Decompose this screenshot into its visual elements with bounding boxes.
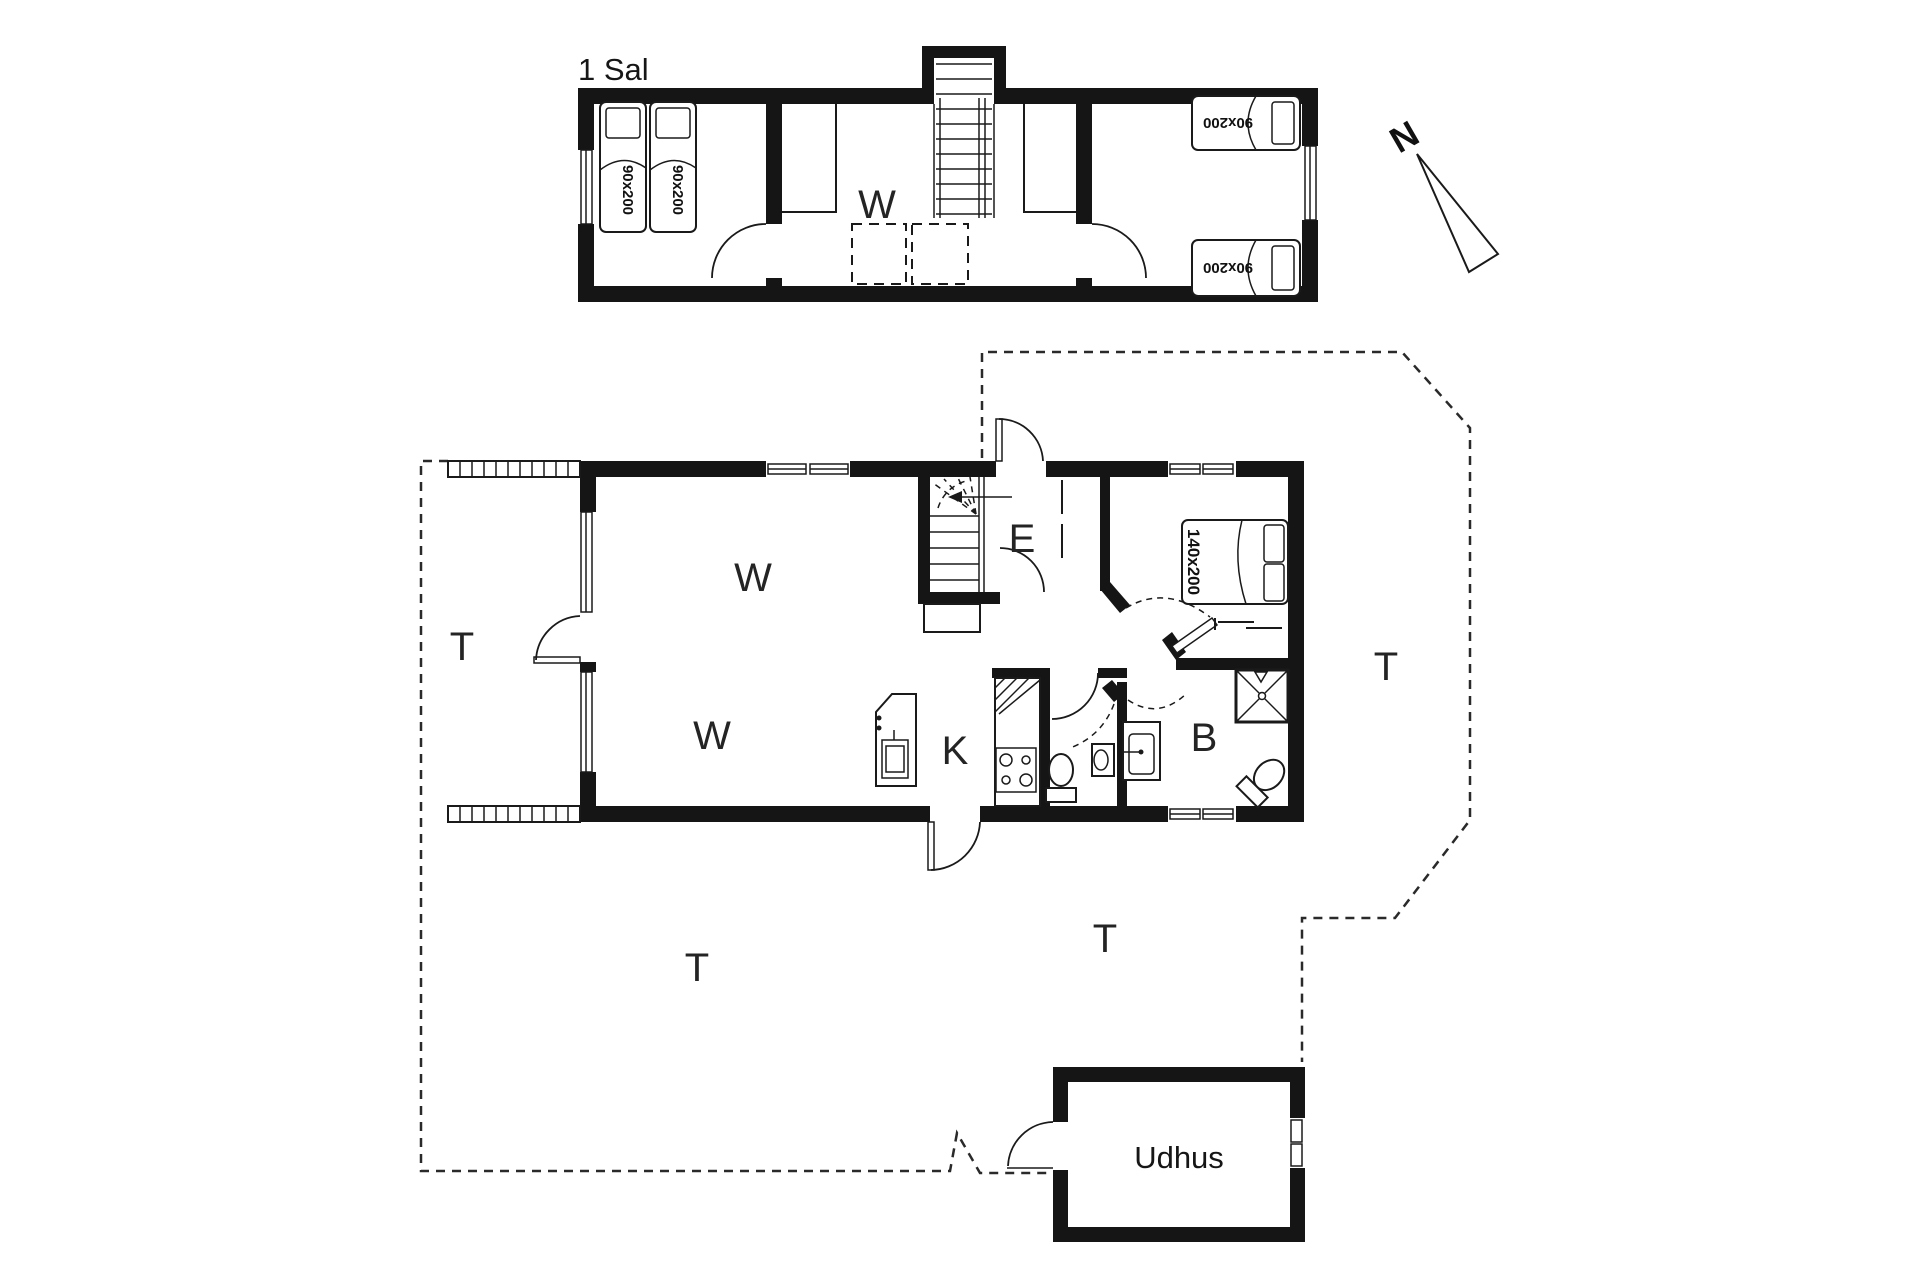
bed-size-label: 90x200: [1203, 114, 1253, 131]
outbuilding: Udhus: [1007, 1067, 1307, 1242]
bed-single-2: 90x200: [650, 102, 696, 232]
hall-wardrobes-dashed: [852, 224, 968, 284]
bed-single-3: 90x200: [1192, 96, 1300, 150]
bath-toilet: [1237, 752, 1292, 807]
first-floor-title: 1 Sal: [578, 52, 649, 87]
terrace-door-left: [534, 616, 580, 663]
bed-size-label: 140x200: [1184, 529, 1203, 595]
first-floor-stair-bumpout: [922, 46, 1006, 104]
bed-single-4: 90x200: [1192, 240, 1300, 296]
compass: N: [1383, 112, 1498, 272]
bed-double: 140x200: [1182, 520, 1288, 604]
ground-floor-staircase: [918, 477, 1012, 632]
first-floor-partitions: [712, 104, 1146, 286]
bath-label: B: [1191, 716, 1218, 760]
kitchen-sink-cabinet: [876, 694, 916, 786]
entry-label: E: [1009, 517, 1036, 561]
bed-size-label: 90x200: [669, 165, 686, 215]
boundary-right: [982, 352, 1470, 1062]
bed-size-label: 90x200: [1203, 259, 1253, 276]
stair-treads: [930, 516, 979, 580]
terrace-label-bottom-right: T: [1093, 917, 1117, 961]
wc-sink: [1092, 744, 1114, 776]
cooktop: [996, 748, 1036, 792]
bath-sink: [1123, 722, 1160, 780]
outbuilding-title: Udhus: [1134, 1140, 1224, 1175]
bed-size-label: 90x200: [619, 165, 636, 215]
door-arc-right-bedroom: [1092, 224, 1146, 278]
floor-plan-drawing: 1 Sal: [0, 0, 1920, 1280]
stair-treads: [936, 64, 992, 214]
living-room-label: W: [734, 556, 772, 600]
outbuilding-door: [1007, 1122, 1053, 1168]
door-arc-left-bedroom: [712, 224, 766, 278]
outbuilding-window: [1288, 1118, 1307, 1168]
terrace-door-bottom: [928, 822, 980, 870]
first-floor-hall-label: W: [858, 183, 896, 227]
floor-plan-page: 1 Sal: [0, 0, 1920, 1280]
ground-floor-plan: 140x200: [448, 419, 1398, 990]
closet-nook-right: [1024, 104, 1076, 212]
ground-floor-bedroom: 140x200: [1176, 520, 1288, 670]
understair-cabinet: [924, 604, 980, 632]
wc-toilet: [1046, 754, 1076, 802]
living-room-label-2: W: [693, 714, 731, 758]
compass-north-label: N: [1383, 112, 1426, 161]
closet-nook-left: [782, 104, 836, 212]
wc-door-arc: [1052, 673, 1098, 719]
entry-door: [996, 419, 1043, 461]
shower: [1236, 670, 1288, 722]
terrace-label-bottom-left: T: [685, 946, 709, 990]
compass-needle-icon: [1417, 154, 1498, 272]
bed-single-1: 90x200: [600, 102, 646, 232]
kitchen-label: K: [942, 729, 969, 773]
first-floor-staircase: [934, 64, 994, 218]
first-floor-plan: 1 Sal: [576, 46, 1320, 302]
terrace-label-left: T: [450, 625, 474, 669]
terrace-label-right: T: [1374, 645, 1398, 689]
